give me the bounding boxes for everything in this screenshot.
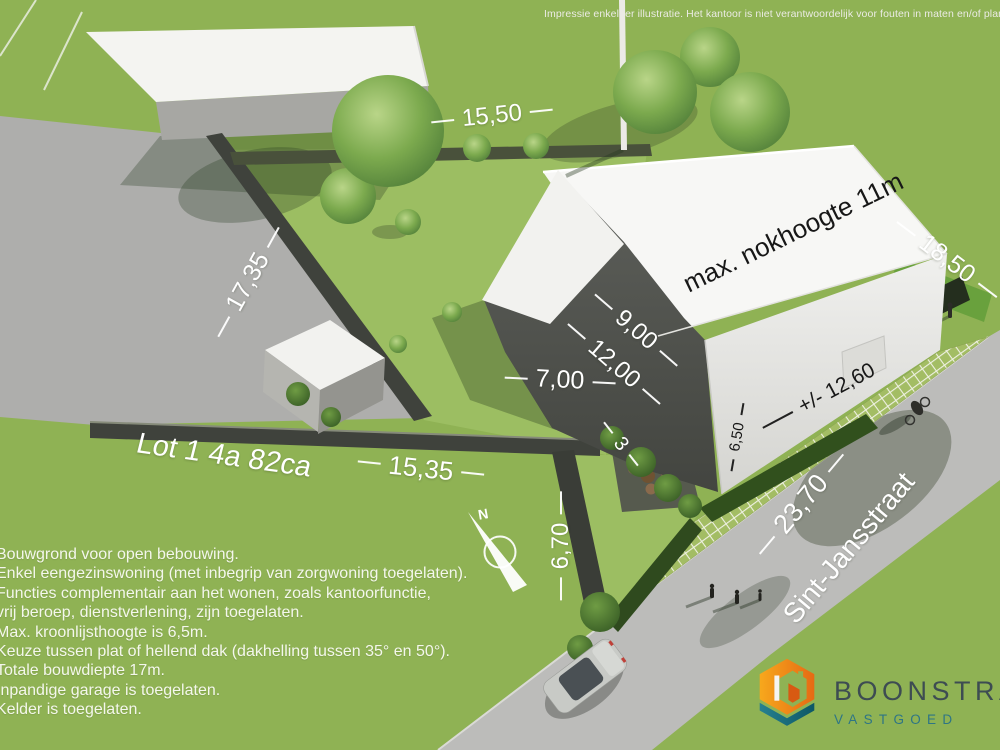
regulation-line: Totale bouwdiepte 17m.	[0, 661, 467, 680]
dim-tick	[740, 403, 744, 415]
regulation-line: Inpandige garage is toegelaten.	[0, 681, 467, 700]
logo-subtitle: VASTGOED	[834, 712, 1000, 727]
regulation-line: Max. kroonlijsthoogte is 6,5m.	[0, 623, 467, 642]
dim-tick	[659, 350, 678, 367]
dim-tick	[358, 460, 381, 464]
regulations-block: Bouwgrond voor open bebouwing. Enkel een…	[0, 545, 467, 720]
dim-tick	[461, 471, 484, 475]
dim-tick	[431, 119, 454, 123]
site-impression: 15,50 17,35 18,50 max. nokhoogte 11m 9,0…	[0, 0, 1000, 750]
dim-tick	[629, 454, 639, 466]
dim-tick	[560, 577, 562, 600]
dim-tick	[978, 282, 998, 297]
dim-value: 3	[610, 433, 633, 454]
dim-tick	[560, 492, 562, 515]
regulation-line: Enkel eengezinswoning (met inbegrip van …	[0, 564, 467, 583]
dim-value: 7,00	[535, 366, 585, 394]
logo-text: BOONSTRA VASTGOED	[834, 676, 1000, 727]
dim-tick	[217, 316, 230, 337]
dim-tick	[759, 535, 775, 554]
dim-tick	[567, 323, 586, 340]
dim-tick	[827, 454, 843, 473]
dim-tick	[592, 381, 615, 384]
dim-tick	[530, 109, 553, 113]
regulation-line: Keuze tussen plat of hellend dak (dakhel…	[0, 642, 467, 661]
dim-tick	[642, 388, 661, 405]
regulation-line: Kelder is toegelaten.	[0, 700, 467, 719]
dim-value: 15,35	[387, 452, 454, 485]
dim-tick	[603, 422, 613, 434]
logo-name: BOONSTRA	[834, 676, 1000, 707]
dim-tick	[505, 376, 528, 379]
dim-tick	[730, 459, 734, 471]
disclaimer-text: Impressie enkel ter illustratie. Het kan…	[544, 8, 1000, 20]
logo-house-icon	[752, 652, 822, 734]
dim-driveway-depth: 6,70	[549, 492, 573, 601]
dim-tick	[594, 294, 613, 311]
dim-value: 6,70	[549, 523, 573, 570]
regulation-line: Bouwgrond voor open bebouwing.	[0, 545, 467, 564]
company-logo: BOONSTRA VASTGOED	[752, 652, 1000, 734]
regulation-line: Functies complementair aan het wonen, zo…	[0, 584, 467, 603]
dim-tick	[897, 221, 917, 236]
dim-value: 15,50	[461, 101, 523, 131]
regulation-line: vrij beroep, dienstverlening, zijn toege…	[0, 603, 467, 622]
dim-tick	[266, 227, 279, 248]
